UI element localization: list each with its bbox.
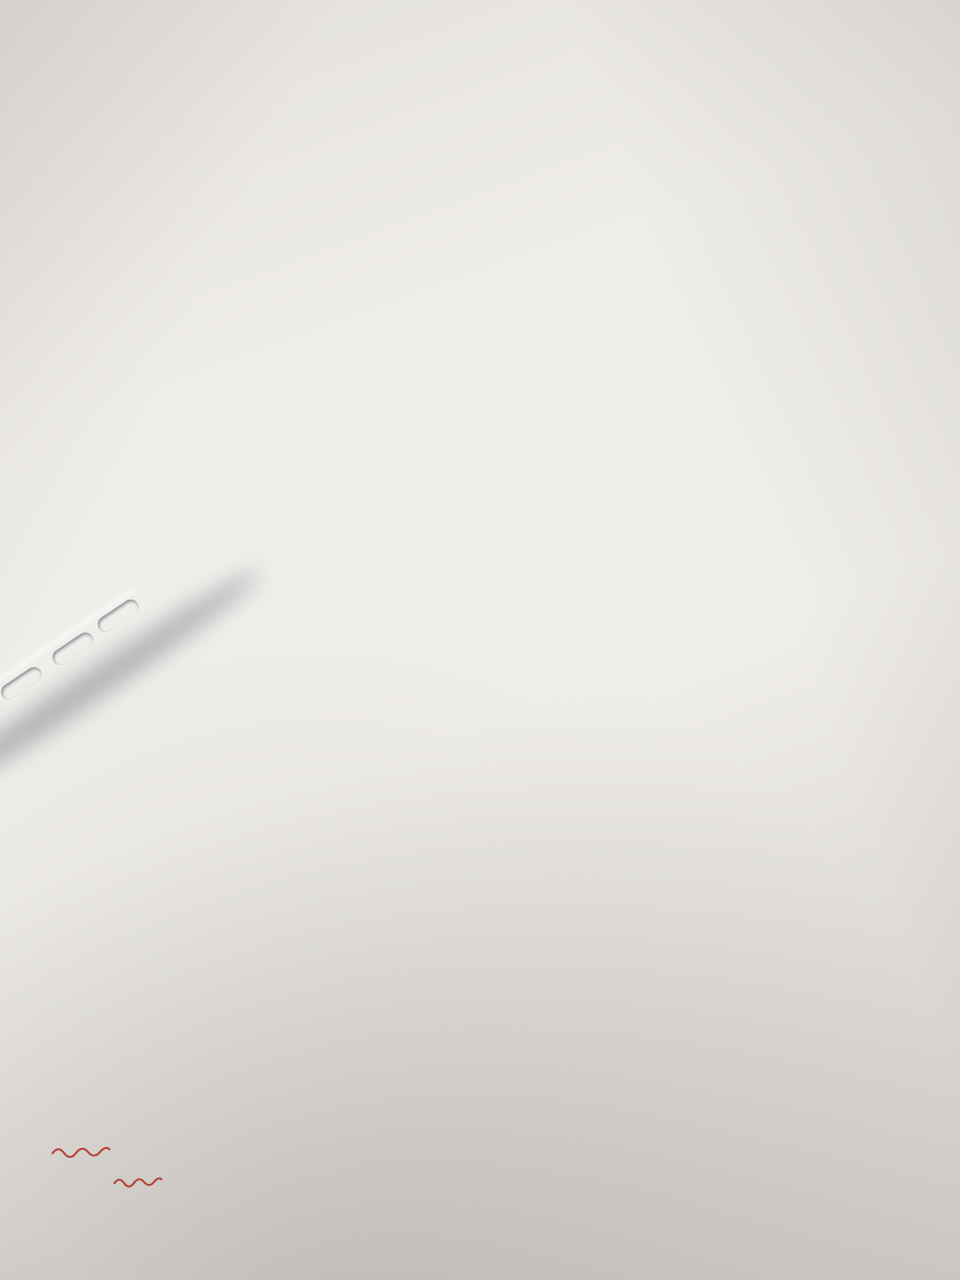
pen xyxy=(0,416,370,842)
cadastral-map-photo xyxy=(0,0,960,1280)
red-annotation-scribble xyxy=(50,1144,114,1160)
red-annotation-scribble xyxy=(112,1174,164,1190)
